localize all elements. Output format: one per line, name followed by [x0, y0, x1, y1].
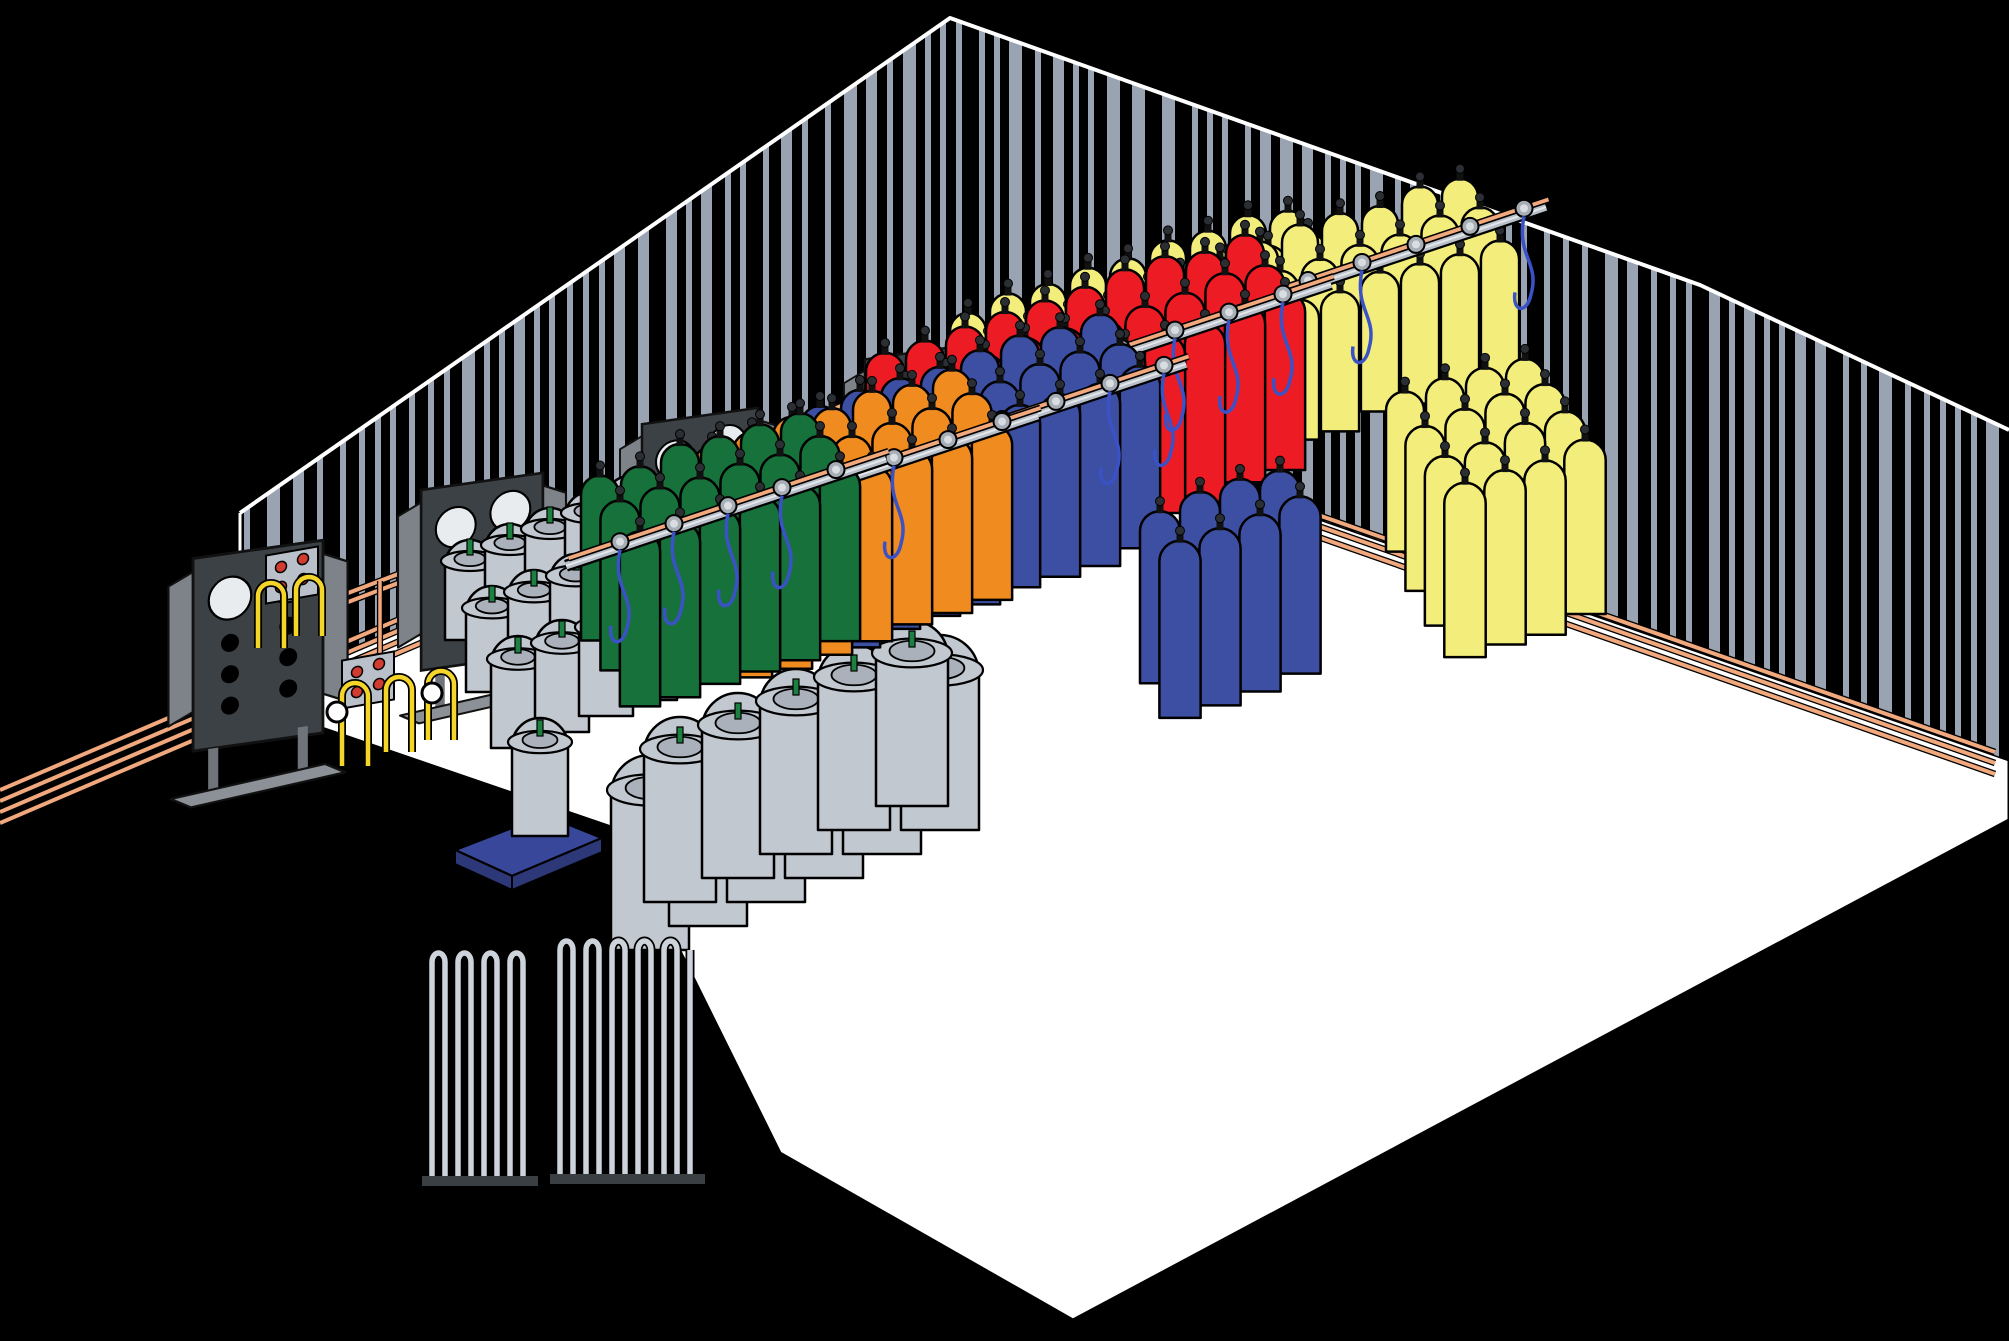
illustration-canvas — [0, 0, 2009, 1341]
gas-filling-plant-illustration — [0, 0, 2009, 1341]
